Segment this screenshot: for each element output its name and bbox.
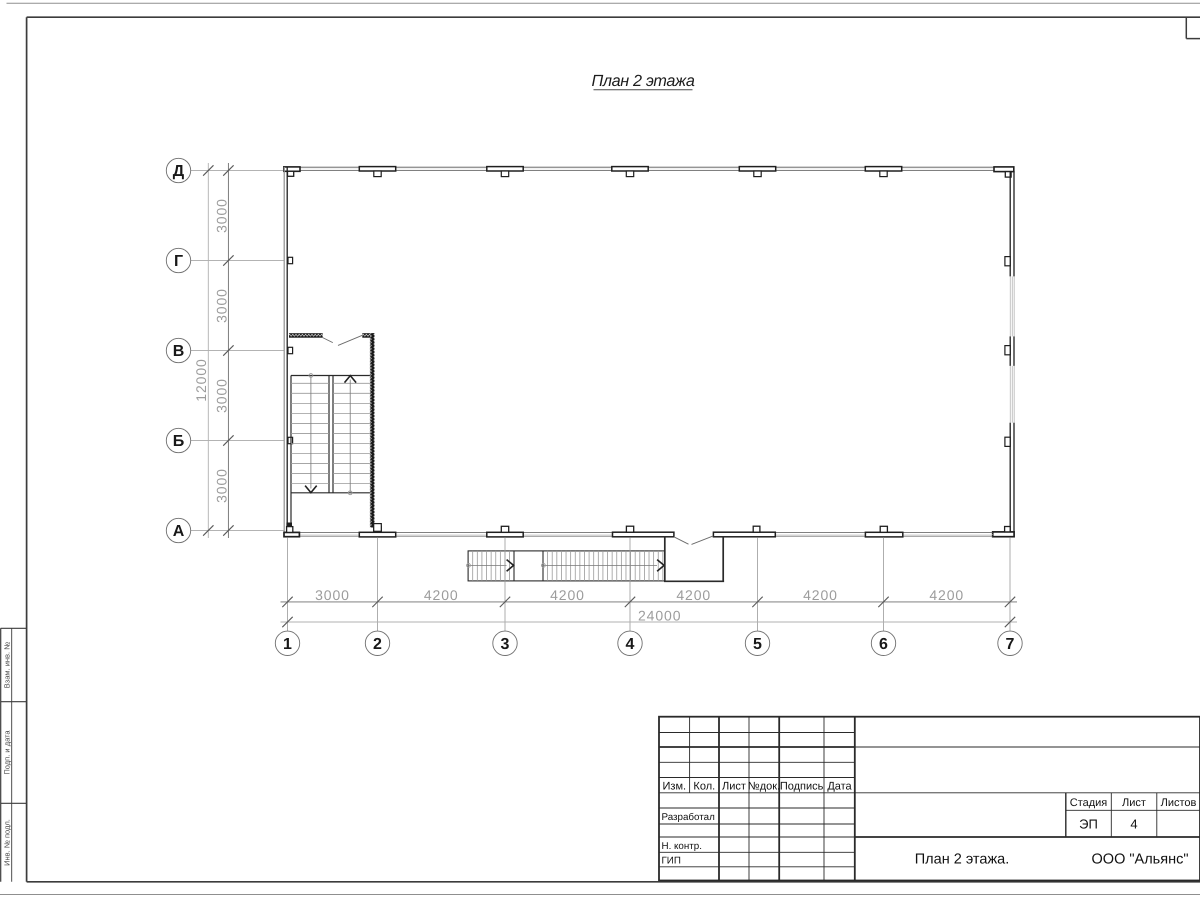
svg-text:План 2 этажа.: План 2 этажа. bbox=[915, 852, 1010, 868]
svg-text:4200: 4200 bbox=[803, 587, 838, 603]
svg-text:ООО "Альянс": ООО "Альянс" bbox=[1092, 852, 1189, 868]
svg-text:ЭП: ЭП bbox=[1079, 816, 1098, 831]
svg-text:Д: Д bbox=[173, 163, 185, 180]
svg-text:6: 6 bbox=[879, 636, 888, 653]
svg-text:4200: 4200 bbox=[424, 587, 459, 603]
svg-text:Изм.: Изм. bbox=[663, 780, 687, 792]
svg-text:3000: 3000 bbox=[213, 198, 229, 233]
svg-text:Дата: Дата bbox=[827, 780, 852, 792]
svg-text:4: 4 bbox=[1130, 816, 1137, 831]
svg-text:12000: 12000 bbox=[193, 358, 209, 401]
svg-text:4200: 4200 bbox=[676, 587, 711, 603]
svg-text:План 2 этажа: План 2 этажа bbox=[592, 72, 695, 90]
svg-text:3000: 3000 bbox=[213, 378, 229, 413]
svg-text:5: 5 bbox=[753, 636, 762, 653]
svg-text:4: 4 bbox=[626, 636, 635, 653]
svg-text:Взам. инв. №: Взам. инв. № bbox=[3, 642, 12, 688]
svg-text:Подп. и дата: Подп. и дата bbox=[3, 730, 12, 775]
svg-text:3000: 3000 bbox=[213, 288, 229, 323]
svg-text:Подпись: Подпись bbox=[780, 780, 824, 792]
svg-text:Стадия: Стадия bbox=[1070, 797, 1108, 809]
svg-text:Разработал: Разработал bbox=[662, 812, 716, 823]
svg-text:4200: 4200 bbox=[929, 587, 964, 603]
svg-text:Г: Г bbox=[174, 253, 183, 270]
svg-text:3: 3 bbox=[501, 636, 510, 653]
svg-text:2: 2 bbox=[373, 636, 382, 653]
svg-text:Б: Б bbox=[173, 433, 185, 450]
svg-text:Н. контр.: Н. контр. bbox=[662, 841, 702, 852]
svg-text:Лист: Лист bbox=[722, 780, 746, 792]
svg-text:Инв. № подл.: Инв. № подл. bbox=[3, 819, 12, 866]
svg-text:3000: 3000 bbox=[213, 468, 229, 503]
svg-text:А: А bbox=[173, 523, 185, 540]
svg-text:Лист: Лист bbox=[1122, 797, 1146, 809]
svg-text:7: 7 bbox=[1006, 636, 1015, 653]
svg-text:3000: 3000 bbox=[315, 587, 350, 603]
svg-text:24000: 24000 bbox=[638, 608, 681, 624]
svg-text:В: В bbox=[173, 343, 185, 360]
svg-text:Кол.: Кол. bbox=[693, 780, 715, 792]
svg-text:4200: 4200 bbox=[550, 587, 585, 603]
svg-text:1: 1 bbox=[283, 636, 292, 653]
svg-text:№док.: №док. bbox=[748, 780, 780, 792]
svg-text:Листов: Листов bbox=[1161, 797, 1197, 809]
svg-text:ГИП: ГИП bbox=[662, 855, 681, 866]
